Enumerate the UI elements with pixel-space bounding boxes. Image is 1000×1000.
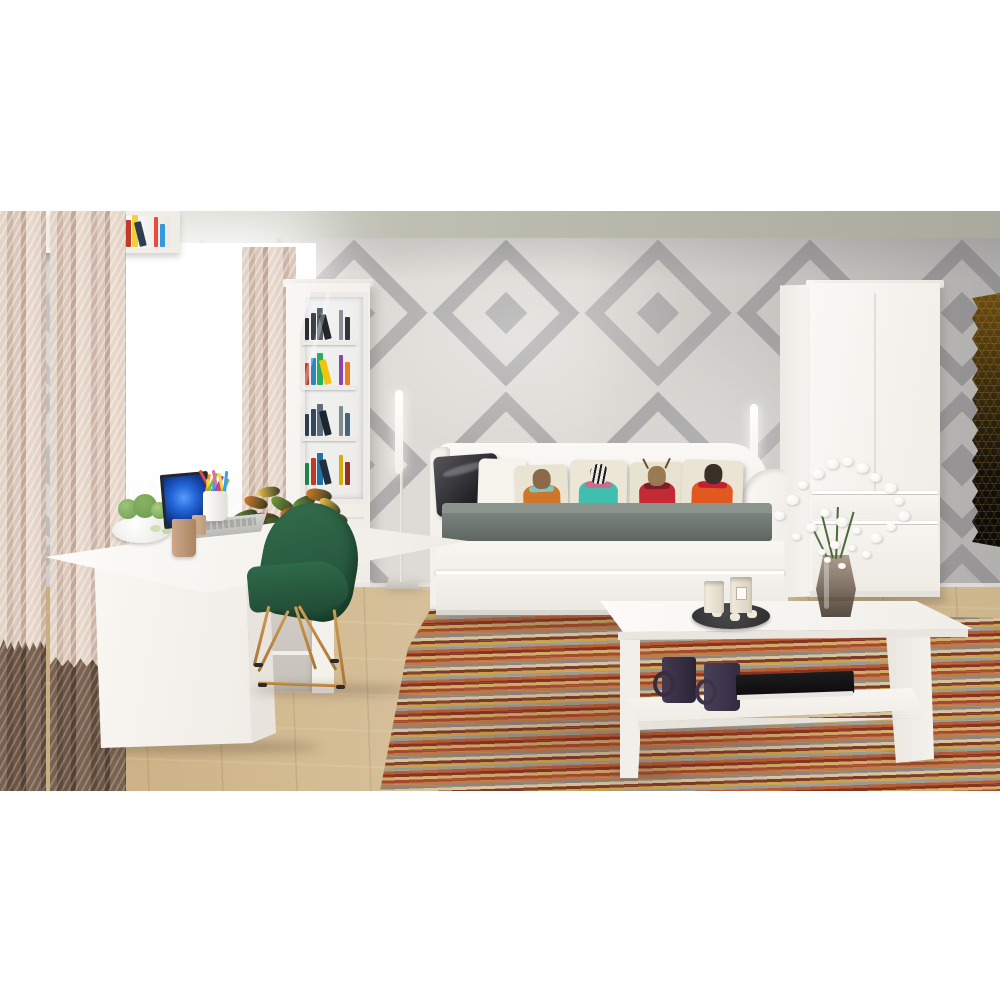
flower-blossom bbox=[798, 481, 808, 489]
floor-lamp-left-tube bbox=[395, 390, 403, 474]
flower-blossom bbox=[862, 551, 871, 558]
flower-blossom bbox=[806, 523, 817, 532]
candle-label bbox=[736, 587, 747, 600]
pillow-figure-head bbox=[532, 469, 551, 490]
wallpaper-tile bbox=[582, 238, 734, 389]
chair-foot bbox=[336, 685, 345, 689]
mattress bbox=[442, 513, 772, 541]
vase-highlight bbox=[824, 561, 829, 609]
mug-handle bbox=[695, 679, 717, 705]
mug bbox=[172, 519, 196, 557]
furniture-room-photo bbox=[0, 0, 1000, 1000]
antler bbox=[664, 458, 670, 469]
flower-blossom bbox=[812, 469, 824, 479]
wardrobe-drawer-1 bbox=[812, 495, 938, 519]
antler bbox=[642, 458, 649, 469]
flower-blossom bbox=[870, 533, 882, 543]
flower-blossom bbox=[836, 517, 848, 527]
chair-foot bbox=[254, 663, 263, 667]
flower-blossom bbox=[774, 511, 785, 520]
door-bottom-gap bbox=[812, 491, 938, 494]
flower-blossom bbox=[870, 473, 881, 482]
flower-blossom bbox=[830, 541, 840, 549]
flower-blossom bbox=[792, 533, 801, 540]
tealight bbox=[730, 613, 740, 621]
book-spine bbox=[126, 220, 131, 247]
flower-blossom bbox=[820, 509, 830, 517]
bed-rail bbox=[436, 541, 784, 571]
flower-blossom bbox=[898, 511, 910, 521]
flower-blossom bbox=[842, 457, 853, 466]
curtain-dark-hem-outer bbox=[0, 639, 46, 791]
drawer-gap bbox=[812, 521, 938, 524]
pillow-figure-head bbox=[648, 466, 666, 486]
wardrobe bbox=[780, 283, 940, 601]
coffee-table bbox=[595, 587, 980, 787]
pebble bbox=[150, 525, 161, 532]
pillow-figure-head bbox=[704, 464, 723, 485]
chair-foot bbox=[258, 683, 267, 687]
flower-vase bbox=[816, 555, 856, 617]
flower-blossom bbox=[852, 527, 861, 534]
flower-blossom bbox=[824, 557, 831, 563]
glass-reflection bbox=[300, 292, 358, 494]
flower-blossom bbox=[886, 523, 896, 531]
pebble bbox=[162, 528, 171, 534]
pillow-figure-head bbox=[590, 464, 608, 484]
pencil-cup bbox=[203, 491, 227, 521]
wallpaper-tile bbox=[430, 238, 582, 389]
room-scene bbox=[0, 211, 1000, 791]
chair-foot bbox=[330, 659, 339, 663]
flower-blossom bbox=[894, 497, 904, 505]
candle-1 bbox=[704, 581, 724, 613]
book-spine bbox=[154, 217, 158, 247]
book-spine bbox=[160, 224, 165, 247]
mug-handle bbox=[653, 671, 675, 697]
door-split bbox=[874, 293, 876, 491]
